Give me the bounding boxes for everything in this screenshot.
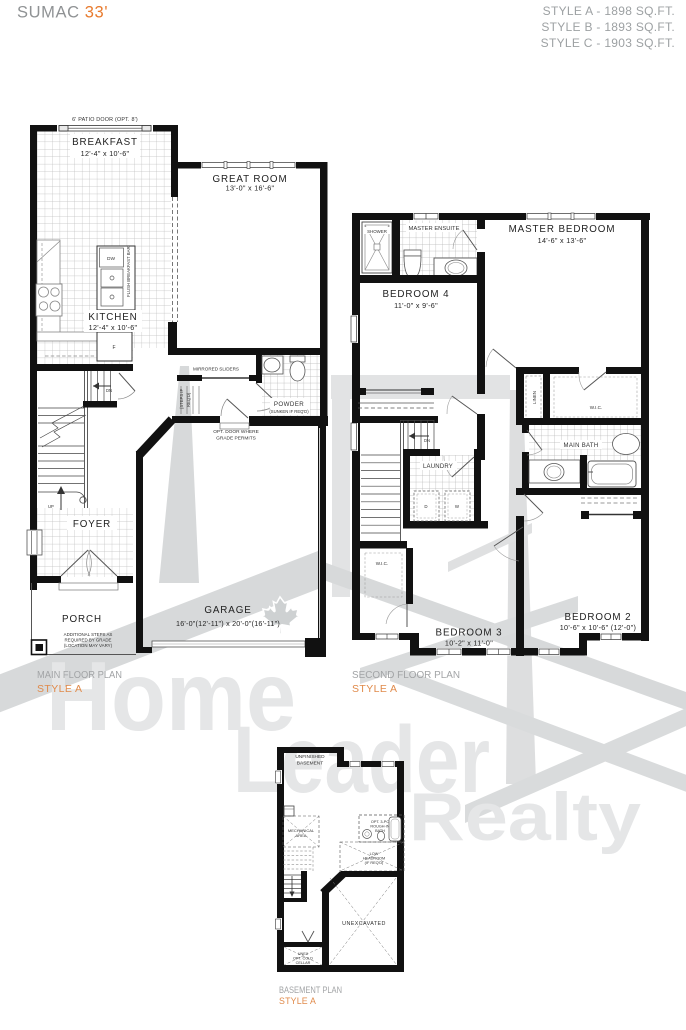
svg-text:Realty: Realty bbox=[409, 779, 641, 855]
svg-text:MAIN BATH: MAIN BATH bbox=[564, 443, 599, 449]
svg-text:PORCH: PORCH bbox=[62, 614, 102, 625]
svg-text:MAIN FLOOR PLAN: MAIN FLOOR PLAN bbox=[37, 670, 122, 681]
svg-text:14'-6" x 13'-6": 14'-6" x 13'-6" bbox=[538, 236, 587, 245]
svg-text:OPT. COLD: OPT. COLD bbox=[293, 957, 313, 961]
svg-text:LOW: LOW bbox=[370, 852, 379, 856]
svg-text:DN: DN bbox=[106, 388, 112, 393]
svg-text:BASEMENT: BASEMENT bbox=[297, 761, 323, 767]
svg-text:POWDER: POWDER bbox=[274, 401, 304, 408]
svg-text:ROUGH-IN: ROUGH-IN bbox=[370, 825, 389, 829]
svg-text:KITCHEN: KITCHEN bbox=[88, 312, 137, 323]
svg-text:UNEXCAVATED: UNEXCAVATED bbox=[342, 921, 386, 927]
svg-text:MIRRORED SLIDERS: MIRRORED SLIDERS bbox=[193, 367, 239, 372]
svg-text:DW: DW bbox=[107, 256, 115, 262]
svg-text:STYLE C - 1903 SQ.FT.: STYLE C - 1903 SQ.FT. bbox=[541, 36, 675, 50]
svg-text:STYLE A - 1898 SQ.FT.: STYLE A - 1898 SQ.FT. bbox=[543, 4, 675, 18]
svg-text:GARAGE: GARAGE bbox=[204, 605, 251, 616]
svg-text:FLUSH BREAKFAST BAR: FLUSH BREAKFAST BAR bbox=[126, 246, 131, 297]
svg-text:12'-4" x 10'-6": 12'-4" x 10'-6" bbox=[81, 149, 130, 158]
svg-text:BEDROOM 4: BEDROOM 4 bbox=[383, 289, 450, 300]
svg-text:SECOND FLOOR PLAN: SECOND FLOOR PLAN bbox=[352, 670, 460, 681]
svg-text:LINEN: LINEN bbox=[532, 391, 537, 404]
svg-text:OPT. DOOR WHERE: OPT. DOOR WHERE bbox=[213, 429, 259, 435]
svg-text:ADDITIONAL STEPS AS: ADDITIONAL STEPS AS bbox=[64, 632, 113, 637]
svg-text:UNEX: UNEX bbox=[298, 952, 309, 956]
svg-text:F: F bbox=[112, 345, 115, 351]
svg-text:SHOWER: SHOWER bbox=[367, 229, 387, 234]
svg-text:D: D bbox=[424, 504, 427, 509]
svg-text:16'-0"(12'-11") x 20'-0"(16'-1: 16'-0"(12'-11") x 20'-0"(16'-11") bbox=[176, 619, 280, 628]
svg-text:STYLE A: STYLE A bbox=[279, 996, 316, 1006]
svg-text:(STEPS IF: (STEPS IF bbox=[179, 389, 184, 409]
svg-text:LAUNDRY: LAUNDRY bbox=[423, 464, 453, 470]
svg-text:SUMAC 33': SUMAC 33' bbox=[17, 4, 108, 22]
svg-text:13'-0" x 16'-6": 13'-0" x 16'-6" bbox=[226, 184, 275, 193]
svg-text:11'-0" x 9'-6": 11'-0" x 9'-6" bbox=[394, 301, 438, 310]
svg-text:OPT. 3-PC: OPT. 3-PC bbox=[371, 820, 389, 824]
svg-text:MASTER BEDROOM: MASTER BEDROOM bbox=[509, 224, 616, 235]
svg-text:BEDROOM 3: BEDROOM 3 bbox=[436, 628, 503, 639]
svg-text:STYLE A: STYLE A bbox=[352, 683, 397, 695]
svg-text:10'-2" x 11'-0": 10'-2" x 11'-0" bbox=[445, 639, 493, 648]
svg-text:REQUIRED BY GRADE: REQUIRED BY GRADE bbox=[64, 638, 111, 643]
svg-text:(LOCATION MAY VARY): (LOCATION MAY VARY) bbox=[64, 643, 113, 648]
svg-text:FOYER: FOYER bbox=[73, 519, 111, 530]
svg-text:6' PATIO DOOR (OPT. 8'): 6' PATIO DOOR (OPT. 8') bbox=[72, 117, 138, 123]
svg-text:HEADROOM: HEADROOM bbox=[363, 857, 385, 861]
svg-text:(SUNKEN IF REQ'D): (SUNKEN IF REQ'D) bbox=[269, 409, 309, 414]
svg-text:12'-4" x 10'-6": 12'-4" x 10'-6" bbox=[89, 323, 138, 332]
svg-text:AREA: AREA bbox=[296, 833, 307, 838]
svg-text:REQ'D): REQ'D) bbox=[186, 392, 191, 407]
svg-text:UP: UP bbox=[48, 504, 54, 509]
svg-text:W.I.C.: W.I.C. bbox=[376, 561, 389, 566]
svg-text:DN: DN bbox=[424, 438, 430, 443]
svg-text:BREAKFAST: BREAKFAST bbox=[72, 137, 138, 148]
svg-text:BEDROOM 2: BEDROOM 2 bbox=[565, 612, 632, 623]
svg-text:BASEMENT PLAN: BASEMENT PLAN bbox=[279, 985, 342, 996]
svg-text:UNFINISHED: UNFINISHED bbox=[295, 754, 325, 760]
svg-text:GRADE PERMITS: GRADE PERMITS bbox=[216, 436, 256, 442]
svg-text:10'-6" x 10'-6" (12'-0"): 10'-6" x 10'-6" (12'-0") bbox=[560, 623, 637, 632]
svg-text:W.I.C.: W.I.C. bbox=[590, 405, 603, 410]
svg-text:MASTER ENSUITE: MASTER ENSUITE bbox=[409, 226, 460, 232]
svg-text:STYLE A: STYLE A bbox=[37, 683, 82, 695]
svg-text:(IF REQ'D): (IF REQ'D) bbox=[365, 861, 384, 865]
svg-text:CELLAR: CELLAR bbox=[296, 961, 311, 965]
svg-text:STYLE B - 1893 SQ.FT.: STYLE B - 1893 SQ.FT. bbox=[541, 20, 675, 34]
